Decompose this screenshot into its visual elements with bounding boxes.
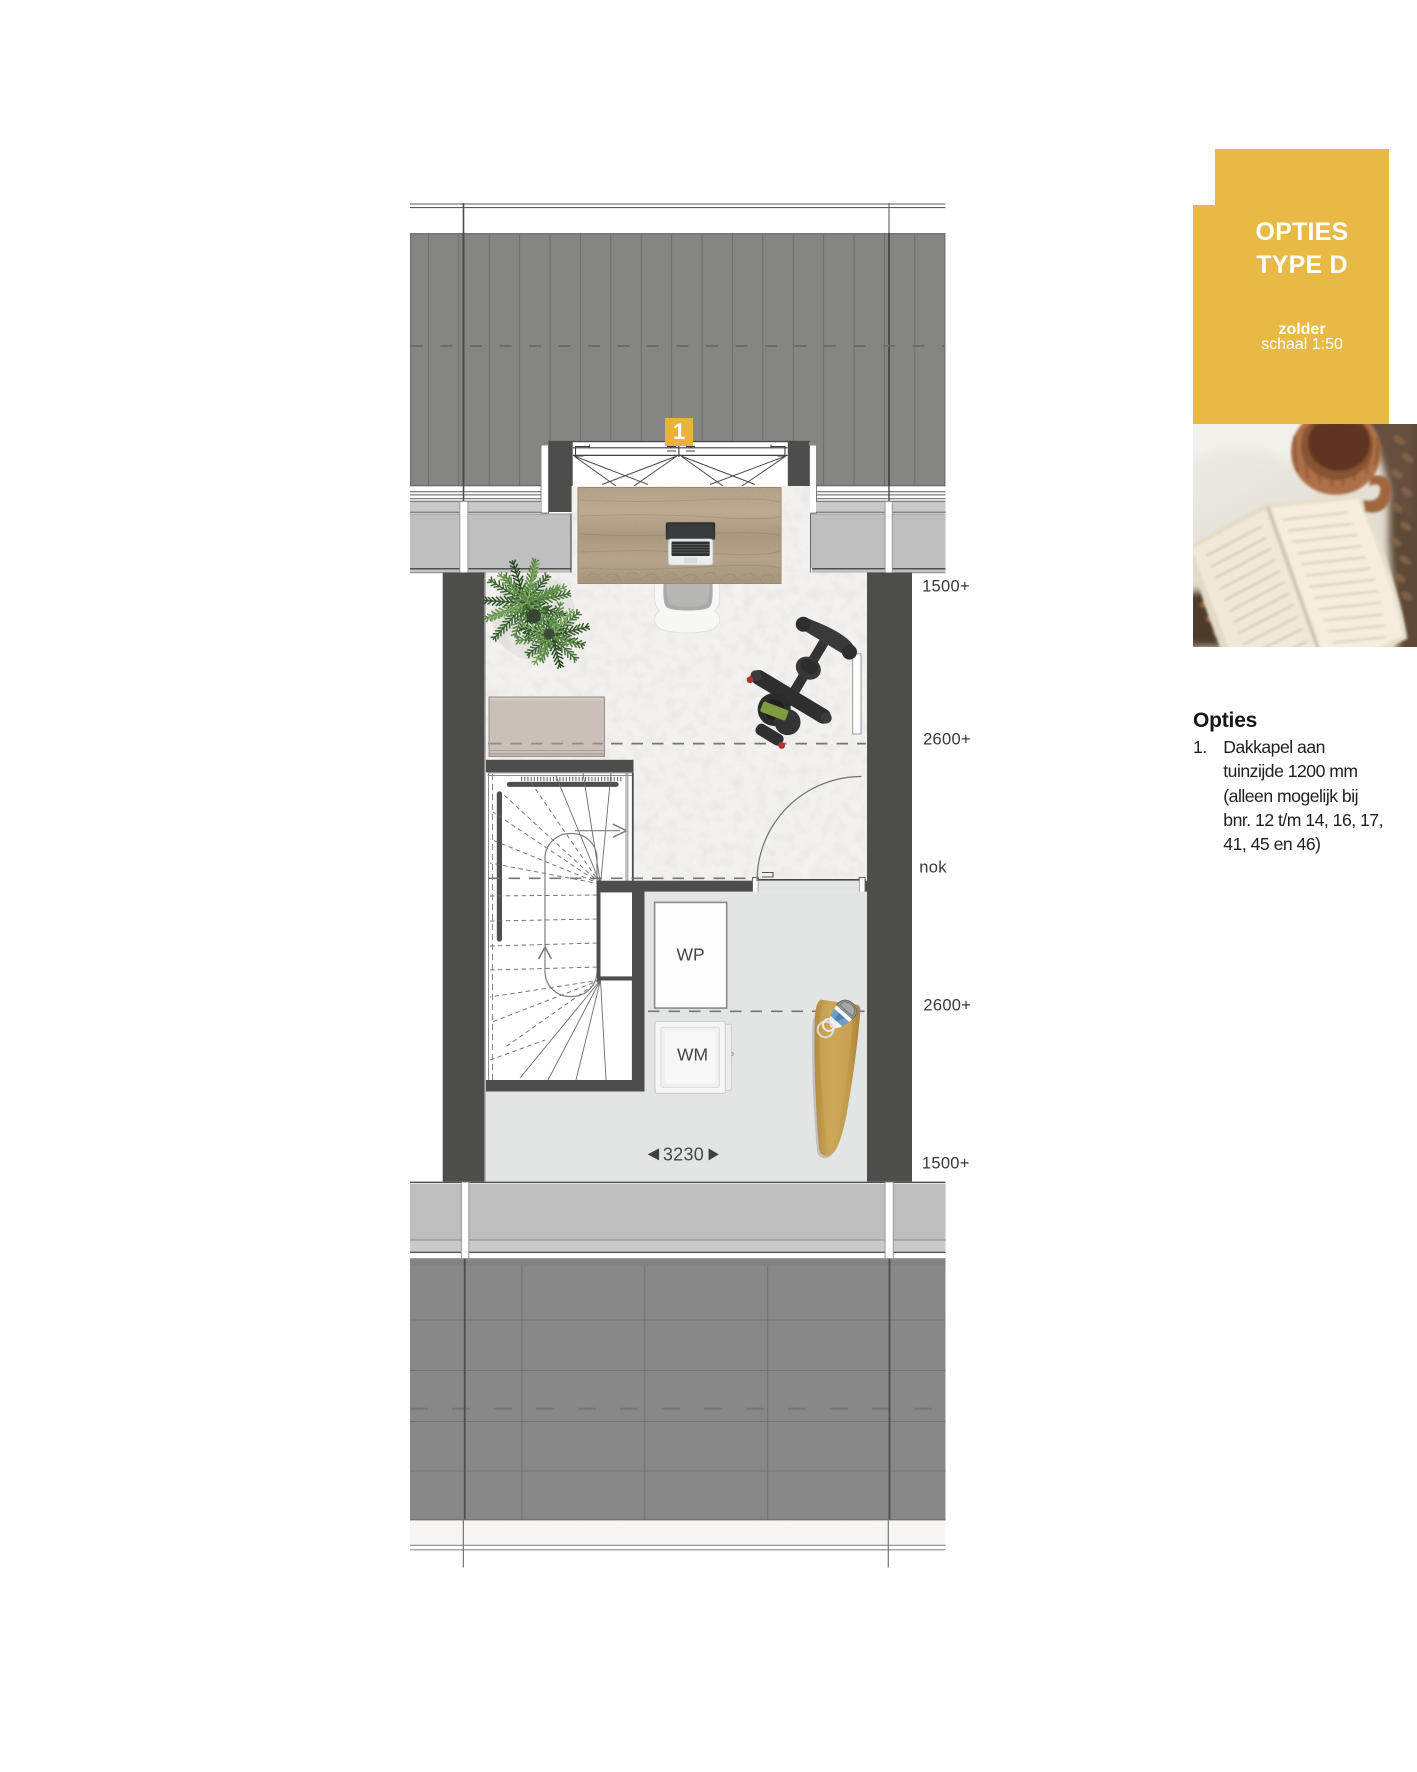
svg-text:WP: WP: [676, 945, 704, 965]
svg-text:WM: WM: [677, 1045, 708, 1065]
